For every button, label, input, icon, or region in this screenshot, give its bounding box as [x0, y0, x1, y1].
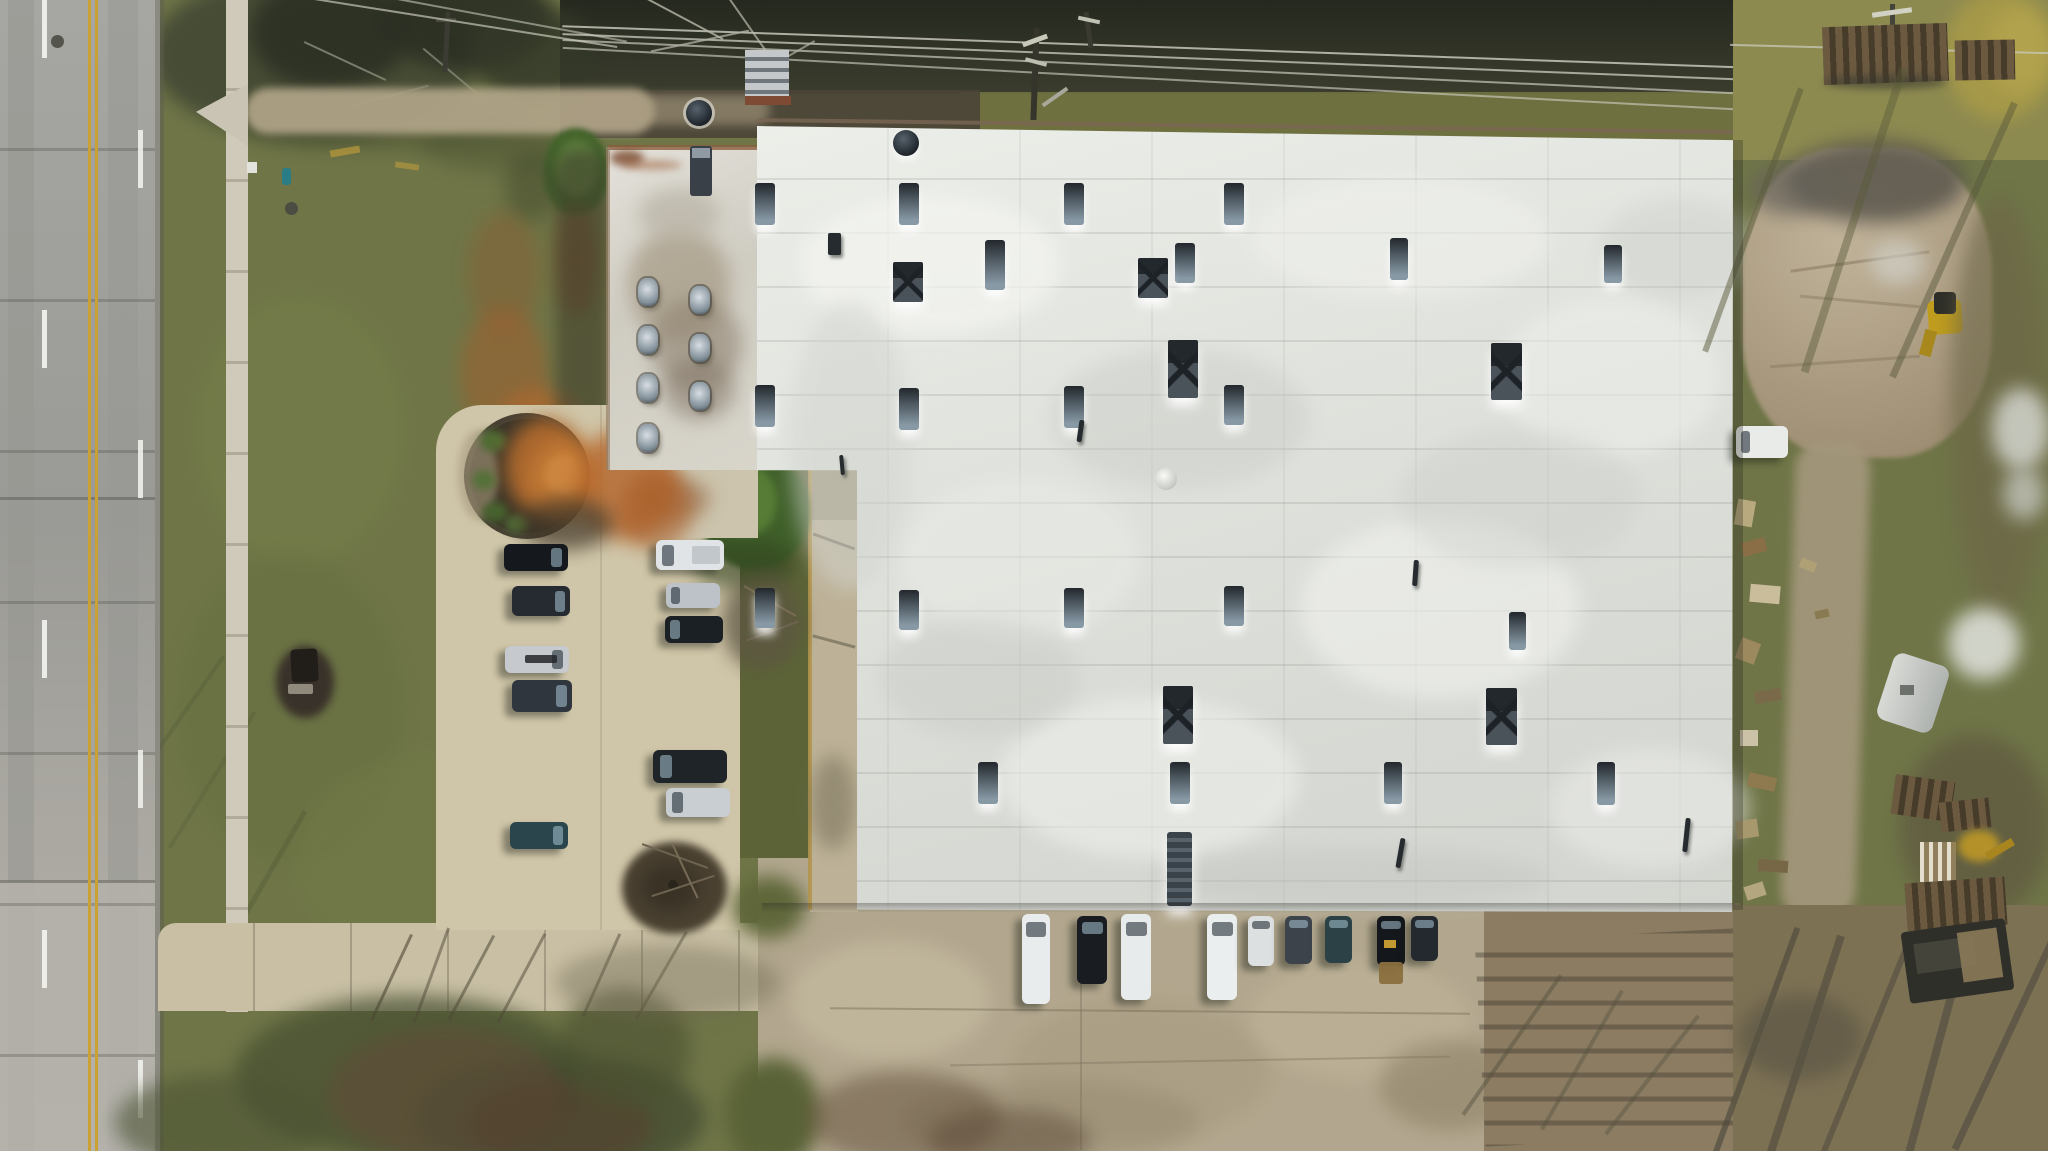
- parked-pickup-silver: [666, 788, 730, 817]
- roof-vent: [1604, 245, 1622, 283]
- windshield: [555, 591, 565, 612]
- building-east-shadow: [1733, 140, 1743, 910]
- skylight: [638, 278, 658, 306]
- roof-gray-mottle: [880, 618, 1080, 738]
- lumber-rack: [1955, 39, 2016, 80]
- white-tarp: [1992, 388, 2048, 470]
- windshield: [671, 587, 680, 605]
- roof-vent: [755, 385, 775, 427]
- annex-rust-streak: [622, 160, 682, 170]
- windshield: [556, 685, 566, 707]
- cargo-trailer-tan: [1379, 962, 1403, 984]
- sidewalk: [226, 0, 248, 1012]
- roof-vent: [899, 388, 919, 430]
- strip-shadow: [810, 755, 856, 850]
- utility-box: [247, 162, 257, 173]
- picket-fence: [1920, 842, 1956, 882]
- roof-hatch-x: [893, 262, 923, 302]
- orange-foliage-spill: [620, 468, 692, 550]
- windshield: [1082, 922, 1103, 934]
- windshield: [1329, 920, 1348, 928]
- shed-brick-base: [745, 96, 791, 105]
- white-tarp: [1948, 608, 2020, 680]
- green-bush: [472, 470, 496, 490]
- windshield: [660, 755, 673, 778]
- roof-vent: [1224, 385, 1244, 425]
- skylight: [638, 374, 658, 402]
- windshield: [553, 826, 563, 845]
- parked-sedan-silver: [666, 583, 720, 608]
- roof-vent: [1170, 762, 1190, 804]
- white-lane-dashes: [138, 0, 143, 1151]
- roof-vent: [1390, 238, 1408, 280]
- ac-unit-glint: [692, 148, 710, 158]
- debris-item: [1741, 537, 1768, 557]
- dock-car-white: [1248, 916, 1274, 966]
- monument-sign: [290, 648, 319, 682]
- green-bush: [482, 502, 508, 522]
- wood-structure: [1939, 797, 1992, 832]
- roof-vent-tall: [1167, 832, 1192, 906]
- skylight: [690, 382, 710, 410]
- roof-vent: [755, 183, 775, 225]
- dock-van-white: [1022, 914, 1050, 1004]
- monument-sign-base: [288, 684, 313, 694]
- roof-vent: [1509, 612, 1526, 650]
- dark-trailer-lid: [1957, 927, 2004, 982]
- dock-car-teal: [1325, 916, 1352, 963]
- roof-hatch-x: [1168, 340, 1198, 398]
- windshield: [1289, 920, 1308, 928]
- debris-item: [1749, 584, 1780, 605]
- roof-edge-shadow: [762, 903, 1734, 913]
- roof-vent: [755, 588, 775, 628]
- debris-item: [1747, 772, 1777, 792]
- windshield: [1126, 922, 1147, 937]
- roof-vent: [899, 183, 919, 225]
- silver-car-racing-stripe: [525, 655, 557, 663]
- windshield: [670, 620, 680, 639]
- paint-mark: [395, 161, 420, 170]
- street-crack: [0, 497, 158, 500]
- roof-vent: [978, 762, 998, 804]
- white-tarp: [2003, 468, 2045, 520]
- debris-item: [1758, 859, 1789, 873]
- skylight: [690, 286, 710, 314]
- roof-white-streak: [1550, 748, 1750, 868]
- dock-van-white: [1207, 914, 1237, 1000]
- drain-cover: [285, 202, 298, 215]
- roof-white-streak: [900, 478, 1140, 638]
- parked-suv-black: [504, 544, 568, 571]
- roof-vent-dome: [893, 130, 919, 156]
- windshield: [662, 545, 674, 566]
- dock-patch: [790, 940, 990, 1060]
- debris-item: [1754, 688, 1782, 704]
- excavator-cab: [1934, 292, 1956, 314]
- windshield: [1026, 922, 1046, 937]
- windshield: [551, 548, 562, 567]
- windshield: [672, 792, 683, 812]
- roof-vent: [1597, 762, 1615, 805]
- double-yellow-line: [95, 0, 98, 1151]
- street-crack: [0, 880, 158, 883]
- roof-gray-mottle: [1400, 428, 1640, 568]
- roof-hatch-x: [1163, 686, 1193, 744]
- roof-vent: [1175, 243, 1195, 283]
- roof-hatch-x: [1486, 688, 1517, 745]
- dock-car-dark: [1411, 916, 1438, 961]
- roof-hatch-x: [1138, 258, 1168, 298]
- dirt-path: [1780, 439, 1872, 921]
- windshield: [1415, 920, 1434, 928]
- skylight: [638, 326, 658, 354]
- mulch-shadow: [520, 498, 612, 550]
- annex-parapet-left: [606, 147, 610, 470]
- roof-vent: [1064, 183, 1084, 225]
- lumber-rack-shadow: [1823, 75, 1948, 89]
- roof-gray-mottle: [790, 300, 910, 590]
- debris-item: [1743, 881, 1766, 900]
- parked-suv-gray: [512, 680, 572, 712]
- pine-shadow: [505, 150, 557, 222]
- parked-car-teal: [510, 822, 568, 849]
- worn-dirt-path: [245, 88, 655, 134]
- windshield: [1381, 921, 1401, 930]
- white-pickup-right: [1736, 426, 1788, 458]
- white-tarp: [1870, 240, 1925, 285]
- roof-vent: [1224, 183, 1244, 225]
- windshield: [1252, 921, 1270, 930]
- roof-gray-mottle: [1150, 848, 1550, 908]
- skylight: [690, 334, 710, 362]
- manhole-cover: [51, 35, 64, 48]
- roof-vent: [985, 240, 1005, 290]
- roof-vent-small: [828, 233, 841, 255]
- roof-hatch-x: [1491, 343, 1522, 400]
- street-expansion-joints: [0, 0, 158, 1151]
- white-lane-dashes: [42, 0, 47, 1151]
- green-bush: [480, 430, 506, 452]
- roof-vent: [1064, 588, 1084, 628]
- aerial-photo-scene: [0, 0, 2048, 1151]
- cargo-yellow-item: [1384, 940, 1396, 948]
- roof-vent: [1224, 586, 1244, 626]
- roof-vent-dome: [686, 100, 712, 126]
- parked-pickup-dark: [653, 750, 727, 783]
- dock-car-gray: [1285, 916, 1312, 964]
- roof-vent: [899, 590, 919, 630]
- fire-hydrant: [282, 168, 291, 185]
- drive-shade-blob: [555, 945, 780, 1020]
- roof-vent: [1384, 762, 1402, 804]
- skylight: [638, 424, 658, 452]
- field-shadow-blob: [1738, 995, 1863, 1080]
- double-yellow-line: [88, 0, 91, 1151]
- dock-car-black: [1077, 916, 1107, 984]
- dock-van-white: [1121, 914, 1151, 1000]
- pickup-bed: [692, 546, 720, 564]
- roof-vent-white-dome: [1155, 468, 1177, 490]
- parked-sedan-black: [665, 616, 723, 643]
- camper-window: [1900, 685, 1914, 695]
- windshield: [1212, 922, 1233, 937]
- tree-canopy: [470, 5, 595, 100]
- parked-suv-charcoal: [512, 586, 570, 616]
